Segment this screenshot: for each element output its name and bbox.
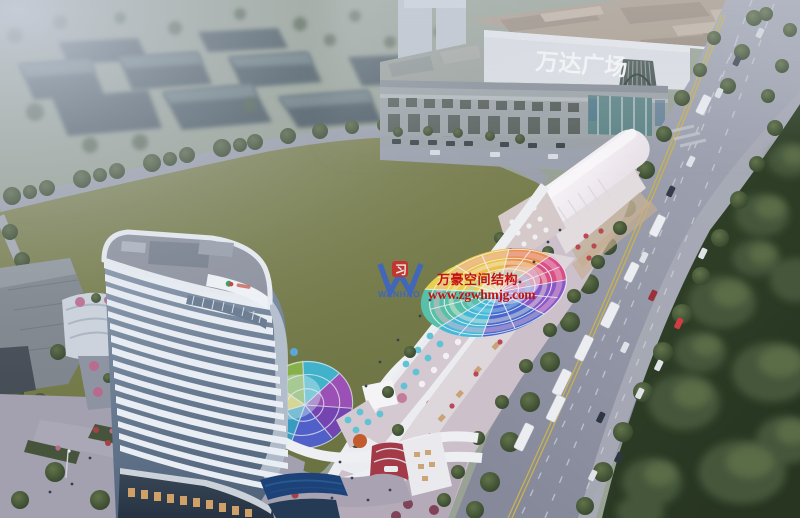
svg-text:www.zgwhmjg.com: www.zgwhmjg.com — [428, 287, 536, 302]
svg-text:万豪空间结构: 万豪空间结构 — [436, 272, 518, 287]
svg-text:习: 习 — [395, 263, 407, 277]
svg-text:WANHAO: WANHAO — [378, 289, 420, 299]
